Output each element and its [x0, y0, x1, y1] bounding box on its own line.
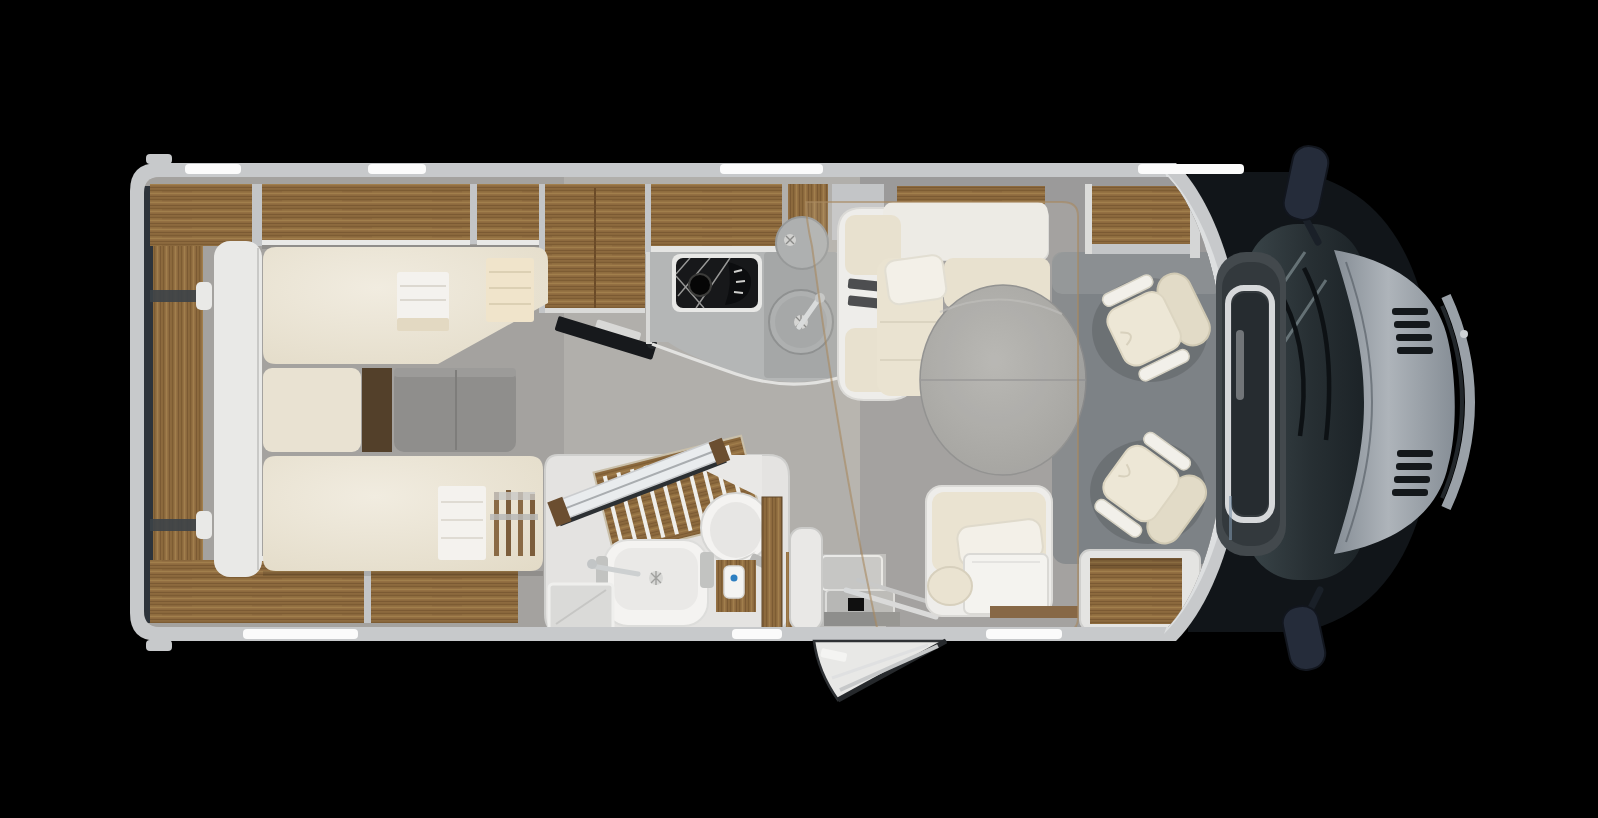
cabinet-divider	[645, 184, 651, 254]
entry-cabinet	[790, 528, 822, 630]
cabinet-divider	[252, 184, 262, 246]
dispenser-dot	[731, 575, 738, 582]
overhead-cabinet-1	[262, 184, 470, 242]
window-strip	[732, 629, 782, 639]
shelf-edge	[477, 240, 539, 245]
cabinet-divider	[470, 184, 477, 244]
brand-badge	[1460, 330, 1468, 338]
kitchen-overhead-cabinet	[651, 184, 782, 250]
shelf-edge	[651, 246, 782, 252]
floorplan-stage	[0, 0, 1598, 818]
window-strip	[243, 629, 358, 639]
shower-tray	[549, 584, 613, 630]
folded-towel-white	[397, 272, 449, 331]
shelf-edge	[262, 240, 470, 245]
foot-bench-grey	[394, 368, 516, 452]
bed-mattress-mid	[263, 368, 361, 452]
floorplan-svg	[0, 0, 1598, 818]
interior	[144, 177, 1237, 632]
left-wall-shadow	[144, 186, 153, 623]
left-trim-tab-upper	[196, 282, 212, 310]
corner-nub-top	[146, 154, 172, 164]
headboard-trim	[214, 241, 262, 577]
wardrobe-gap-upper	[150, 290, 204, 302]
overhead-cabinet-2	[477, 184, 539, 242]
bathroom-wood-partition	[762, 497, 782, 632]
locker-side-wall	[1085, 184, 1092, 254]
bed-shadow	[263, 571, 543, 576]
folded-towel-foot	[438, 486, 486, 560]
locker-front-band	[1092, 244, 1190, 254]
bed-mattress-foot	[263, 456, 543, 571]
bathroom-cabinet	[716, 560, 756, 612]
gas-hob	[672, 254, 762, 312]
corner-nub-bottom	[146, 640, 172, 651]
bathroom	[545, 436, 789, 632]
entry-sensor	[848, 598, 864, 611]
window-strip	[720, 164, 823, 174]
window-strip	[1138, 164, 1244, 174]
wardrobe-gap-lower	[150, 519, 204, 531]
folded-towel-cream	[486, 258, 534, 322]
bed-niche-wood	[362, 368, 392, 452]
window-strip	[368, 164, 426, 174]
overhead-locker-right	[1092, 186, 1190, 248]
window-strip	[986, 629, 1062, 639]
overcab-window	[1216, 252, 1286, 556]
tall-wardrobe-edge	[545, 308, 645, 313]
window-strip	[185, 164, 241, 174]
left-trim-tab-lower	[196, 511, 212, 539]
overhead-cabinet-corner	[150, 184, 252, 246]
wardrobe-left-column	[153, 186, 203, 623]
